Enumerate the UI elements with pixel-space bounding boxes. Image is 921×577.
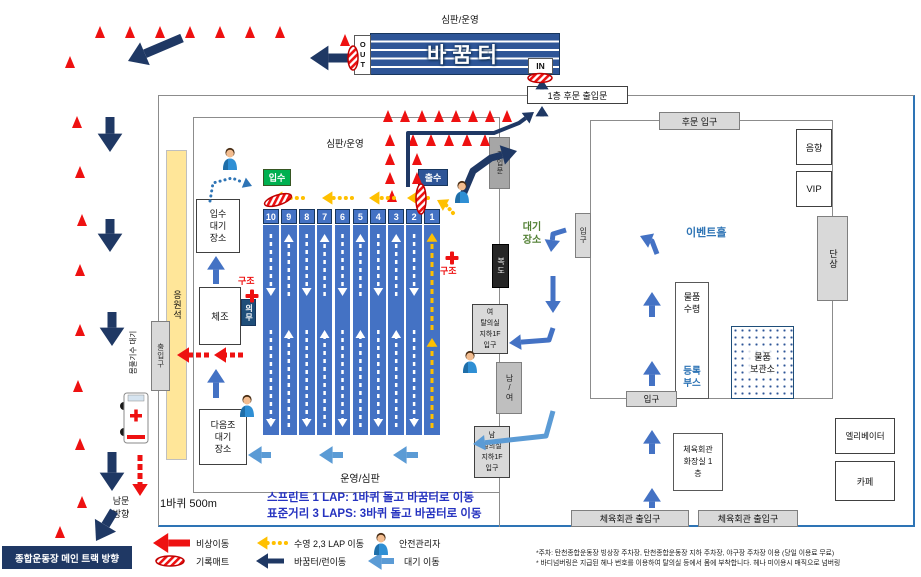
flow-arrow [100,452,125,491]
cheering-stand: 응원석 [166,150,187,460]
stage-label: 단상 [828,249,837,269]
hallway-label: 복도 [497,257,505,275]
flow-arrow [310,46,348,71]
ambulance-icon [120,393,148,443]
pickup-label: 물품 수령 [684,291,701,315]
cone-icon [215,26,225,38]
cone-icon [77,214,87,226]
cone-icon [73,380,83,392]
legend-emergency-label: 비상이동 [196,537,229,550]
out-door-label: OUT [359,40,367,70]
registration-label: 등록 부스 [683,366,700,390]
storage-label: 물품 보관소 [748,350,777,376]
stage-box: 단상 [817,216,848,301]
lane-bar [353,225,369,435]
lane-number: 10 [263,209,279,224]
legend-transition-run-label: 바꿈터/런이동 [294,555,346,568]
rescue-label-left: 구조 [238,274,255,287]
standard-note: 표준거리 3 LAPS: 3바퀴 돌고 바꿈터로 이동 [267,505,482,521]
lane-bar [263,225,279,435]
south-gate-label: 남문 방향 [103,495,139,521]
flow-arrow [98,117,123,152]
lane-bar [335,225,351,435]
pickup-registration-box: 물품 수령 등록 부스 [675,282,709,399]
out-door: OUT [354,35,371,75]
hallway-box: 복도 [492,244,509,288]
footnote-numbering: * 바디넘버링은 지급된 헤나 번호를 이용하여 탈의실 등에서 몸에 부착합니… [536,559,918,569]
cheering-label: 응원석 [172,290,181,320]
pool-left-exit-door: 출입구 [151,321,170,391]
cafe-box: 카페 [835,461,895,501]
corridor-top-door-label: 출입문 [496,151,503,175]
cone-icon [75,166,85,178]
cone-icon [245,26,255,38]
corridor-right-door: 입구 [575,213,591,258]
corridor-right-door-label: 입구 [579,227,587,244]
venue-map: 심판/운영 바꿈터 OUT IN 1층 후문 출입문 심판/운영 입수 출수 1… [0,0,921,577]
rear-entrance-box: 후문 입구 [659,112,740,130]
footnote-parking: *주차: 탄천종합운동장 빙상장 주차장, 탄천종합운동장 지하 주차장, 야구… [536,549,918,559]
cone-icon [72,116,82,128]
cone-icon [275,26,285,38]
medical-label: 의무 [245,304,253,322]
lane-number: 3 [388,209,404,224]
locker-mf-door-label: 남/여 [505,374,513,402]
cone-icon [65,56,75,68]
gym-entrance-right: 체육회관 출입구 [698,510,798,527]
lane-bar [317,225,333,435]
lane-bar [299,225,315,435]
cone-icon [75,438,85,450]
lane-bar [388,225,404,435]
lane-number: 9 [281,209,297,224]
sprint-note: 스프린트 1 LAP: 1바퀴 돌고 바꿈터로 이동 [267,489,474,505]
legend-swimlap-label: 수영 2,3 LAP 이동 [294,537,364,550]
women-locker-entrance: 여 탈의실 지하1F 입구 [472,304,508,354]
safety-manager-icon [374,533,388,555]
corridor-wall [499,493,500,527]
cone-icon [125,26,135,38]
flow-arrow [368,552,394,570]
cone-icon [185,26,195,38]
lane-number: 7 [317,209,333,224]
corridor-wait-label: 대기 장소 [512,221,552,247]
sound-booth: 음향 [796,129,832,165]
lane-number: 1 [424,209,440,224]
storage-box: 물품 보관소 [731,326,794,399]
next-group-wait-box: 다음조 대기 장소 [199,409,247,465]
referee-label-bottom: 운영/심판 [320,470,400,485]
locker-mf-door: 남/여 [496,362,522,414]
rescue-label-right: 구조 [440,264,457,277]
cone-icon [77,496,87,508]
water-entry-badge: 입수 [263,169,291,186]
water-exit-badge: 출수 [418,169,448,186]
vip-room: VIP [796,171,832,207]
pool-left-exit-label: 출입구 [157,343,165,369]
referee-label-top: 심판/운영 [420,12,500,26]
flow-arrow [256,553,284,569]
cone-icon [95,26,105,38]
cone-icon [55,526,65,538]
lane-number: 5 [353,209,369,224]
lane-bar [424,225,440,435]
legend-safety-manager-label: 안전관리자 [399,537,440,550]
rear-door-box: 1층 후문 출입문 [527,86,628,104]
hall-entrance-box: 입구 [626,391,677,407]
lane-bar [406,225,422,435]
lap-distance-note: 1바퀴 500m [160,495,217,511]
in-door: IN [528,58,553,74]
flow-arrow [132,455,148,496]
legend-mat-label: 기록매트 [196,555,229,568]
cone-icon [75,324,85,336]
flow-arrow [128,38,182,65]
main-track-banner: 종합운동장 메인 트랙 방향 [2,546,132,569]
flow-arrow [257,536,286,549]
men-locker-entrance: 남 탈의실 지하1F 입구 [474,426,510,478]
corridor-top-door: 출입문 [489,137,510,189]
lane-number: 2 [406,209,422,224]
gym-restroom-box: 체육회관 화장실 1 층 [673,433,723,491]
event-hall-label: 이벤트홀 [686,224,726,240]
lane-number: 6 [335,209,351,224]
gym-entrance-left: 체육회관 출입구 [571,510,689,527]
lane-bar [370,225,386,435]
entry-wait-box: 입수 대기 장소 [196,199,240,253]
cone-icon [340,34,350,46]
lane-number: 8 [299,209,315,224]
flow-arrow [153,533,190,553]
flow-arrow [100,312,125,346]
elevator-box: 엘리베이터 [835,418,895,454]
warmup-wait-note: 몸풀기수 대기 [128,308,139,398]
referee-label-pool: 심판/운영 [305,136,385,150]
medical-box: 의무 [241,299,256,326]
lane-number: 4 [370,209,386,224]
legend-wait-move-label: 대기 이동 [404,555,440,568]
cone-icon [75,264,85,276]
flow-arrow [98,219,123,252]
lane-bar [281,225,297,435]
cone-icon [155,26,165,38]
timing-mat-icon [156,556,184,566]
warmup-box: 체조 [199,287,241,345]
